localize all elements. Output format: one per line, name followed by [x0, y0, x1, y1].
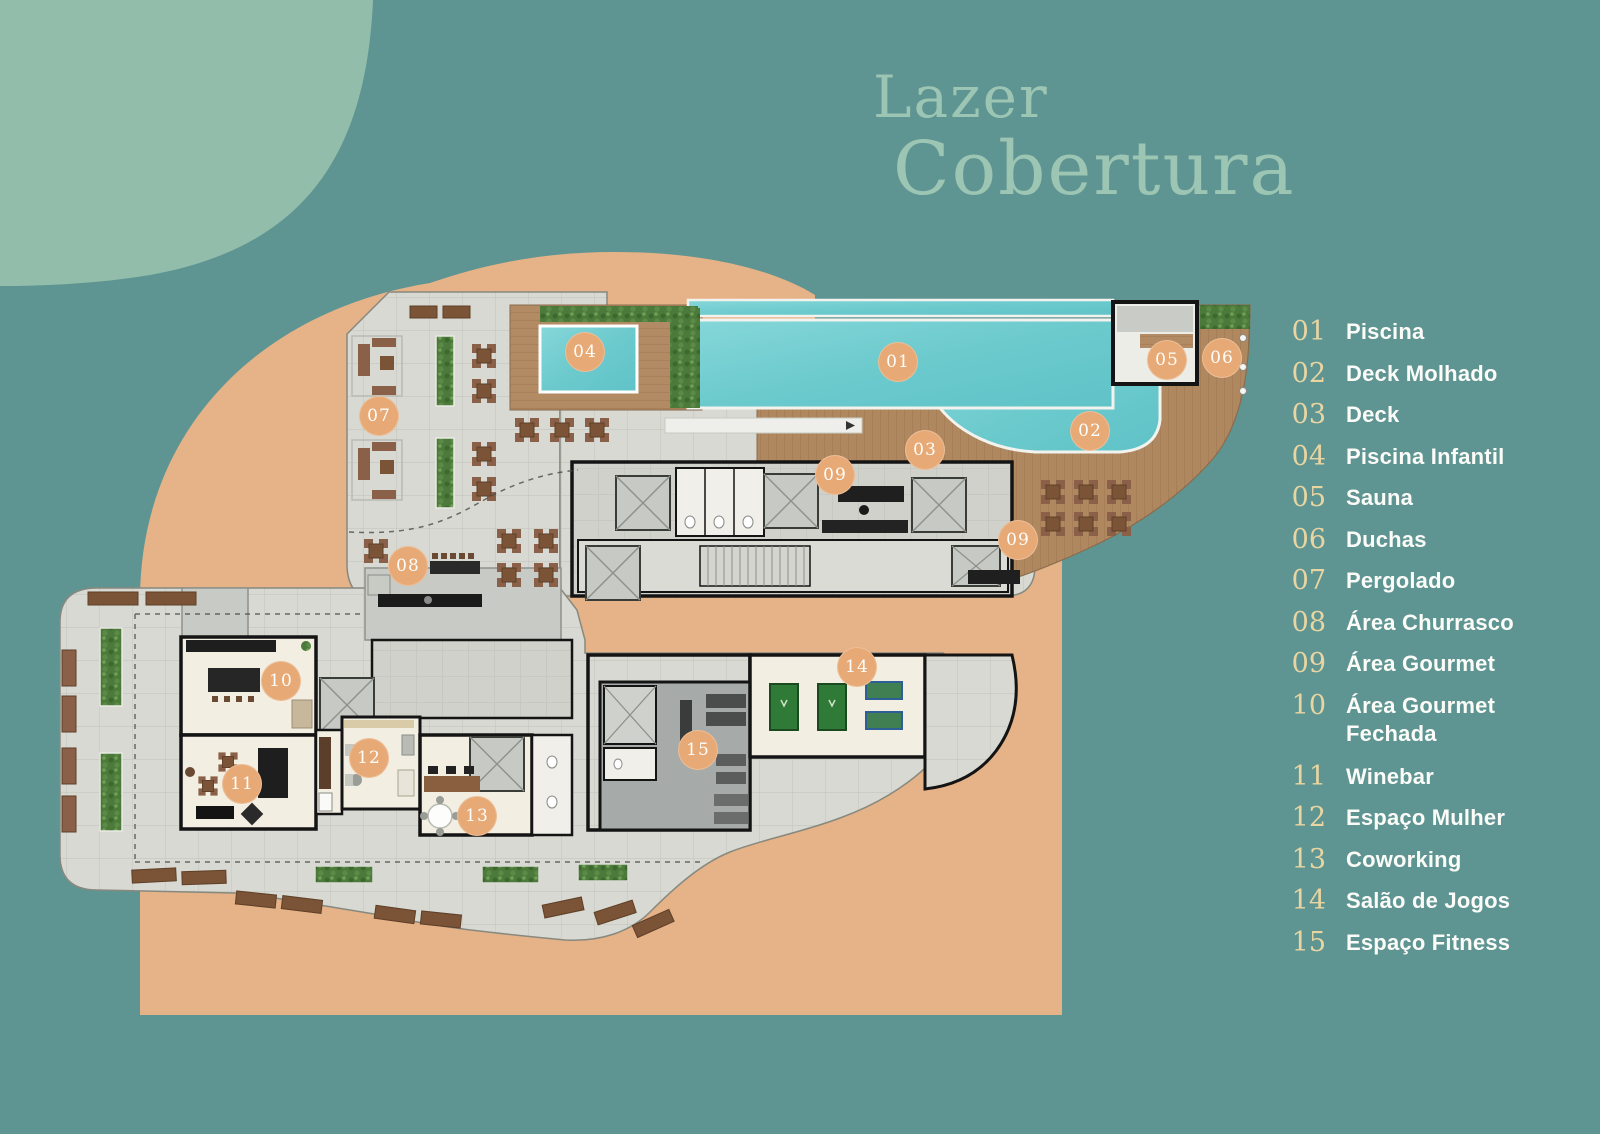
legend-num: 08	[1250, 603, 1346, 642]
plan-marker-09a: 09	[815, 455, 855, 495]
plan-marker-13: 13	[457, 796, 497, 836]
legend-label: Sauna	[1346, 478, 1580, 513]
planter	[100, 753, 122, 831]
legend-num: 10	[1250, 686, 1346, 725]
hedge-strip	[670, 308, 700, 408]
corridor	[372, 640, 572, 718]
legend-num: 06	[1250, 520, 1346, 559]
legend-label: Deck	[1346, 395, 1580, 430]
legend-label: Área Churrasco	[1346, 603, 1580, 638]
plan-marker-12: 12	[349, 738, 389, 778]
legend-num: 14	[1250, 881, 1346, 920]
plan-marker-14: 14	[837, 647, 877, 687]
sage-corner-shape	[0, 0, 373, 286]
legend-num: 04	[1250, 437, 1346, 476]
plan-marker-01: 01	[878, 342, 918, 382]
plan-marker-15: 15	[678, 730, 718, 770]
page-title: Lazer Cobertura	[855, 68, 1296, 206]
legend-label: Área Gourmet	[1346, 644, 1580, 679]
legend-item-15: 15 Espaço Fitness	[1250, 923, 1580, 965]
legend-label: Piscina	[1346, 312, 1580, 347]
legend-item-13: 13 Coworking	[1250, 840, 1580, 882]
legend-item-08: 08 Área Churrasco	[1250, 603, 1580, 645]
legend-item-05: 05 Sauna	[1250, 478, 1580, 520]
legend-label: Winebar	[1346, 757, 1580, 792]
legend-num: 15	[1250, 923, 1346, 962]
legend-label: Espaço Mulher	[1346, 798, 1580, 833]
legend: 01 Piscina 02 Deck Molhado 03 Deck 04 Pi…	[1250, 312, 1580, 964]
legend-num: 11	[1250, 757, 1346, 796]
legend-num: 05	[1250, 478, 1346, 517]
planter	[436, 336, 454, 406]
legend-num: 12	[1250, 798, 1346, 837]
hedge-strip	[1200, 305, 1250, 329]
page: Lazer Cobertura 01 02 03 04 05 06 07 08 …	[0, 0, 1600, 1134]
title-line1: Lazer	[873, 68, 1296, 126]
legend-item-03: 03 Deck	[1250, 395, 1580, 437]
planter	[100, 628, 122, 706]
fitness-15-room	[600, 682, 750, 830]
legend-item-07: 07 Pergolado	[1250, 561, 1580, 603]
legend-num: 03	[1250, 395, 1346, 434]
plan-marker-09b: 09	[998, 520, 1038, 560]
plan-marker-02: 02	[1070, 411, 1110, 451]
services-core	[572, 462, 1020, 600]
legend-num: 07	[1250, 561, 1346, 600]
plan-marker-05: 05	[1147, 340, 1187, 380]
legend-label: Espaço Fitness	[1346, 923, 1580, 958]
legend-item-11: 11 Winebar	[1250, 757, 1580, 799]
plan-marker-11: 11	[222, 764, 262, 804]
legend-item-02: 02 Deck Molhado	[1250, 354, 1580, 396]
title-line2: Cobertura	[893, 132, 1296, 206]
legend-item-12: 12 Espaço Mulher	[1250, 798, 1580, 840]
legend-label: Piscina Infantil	[1346, 437, 1580, 472]
planter	[482, 866, 539, 883]
legend-item-04: 04 Piscina Infantil	[1250, 437, 1580, 479]
legend-item-06: 06 Duchas	[1250, 520, 1580, 562]
legend-num: 09	[1250, 644, 1346, 683]
planter	[315, 866, 373, 883]
planter	[436, 438, 454, 508]
plan-marker-10: 10	[261, 661, 301, 701]
legend-label: Salão de Jogos	[1346, 881, 1580, 916]
planter	[578, 864, 628, 881]
plan-marker-03: 03	[905, 430, 945, 470]
plan-marker-06: 06	[1202, 338, 1242, 378]
legend-item-09: 09 Área Gourmet	[1250, 644, 1580, 686]
plan-marker-04: 04	[565, 332, 605, 372]
legend-num: 13	[1250, 840, 1346, 879]
legend-item-10: 10 Área Gourmet Fechada	[1250, 686, 1580, 757]
legend-item-14: 14 Salão de Jogos	[1250, 881, 1580, 923]
legend-label: Coworking	[1346, 840, 1580, 875]
legend-label: Área Gourmet Fechada	[1346, 686, 1580, 749]
legend-label: Deck Molhado	[1346, 354, 1580, 389]
legend-num: 01	[1250, 312, 1346, 351]
legend-label: Pergolado	[1346, 561, 1580, 596]
legend-label: Duchas	[1346, 520, 1580, 555]
legend-item-01: 01 Piscina	[1250, 312, 1580, 354]
plan-marker-07: 07	[359, 396, 399, 436]
legend-num: 02	[1250, 354, 1346, 393]
plan-marker-08: 08	[388, 546, 428, 586]
